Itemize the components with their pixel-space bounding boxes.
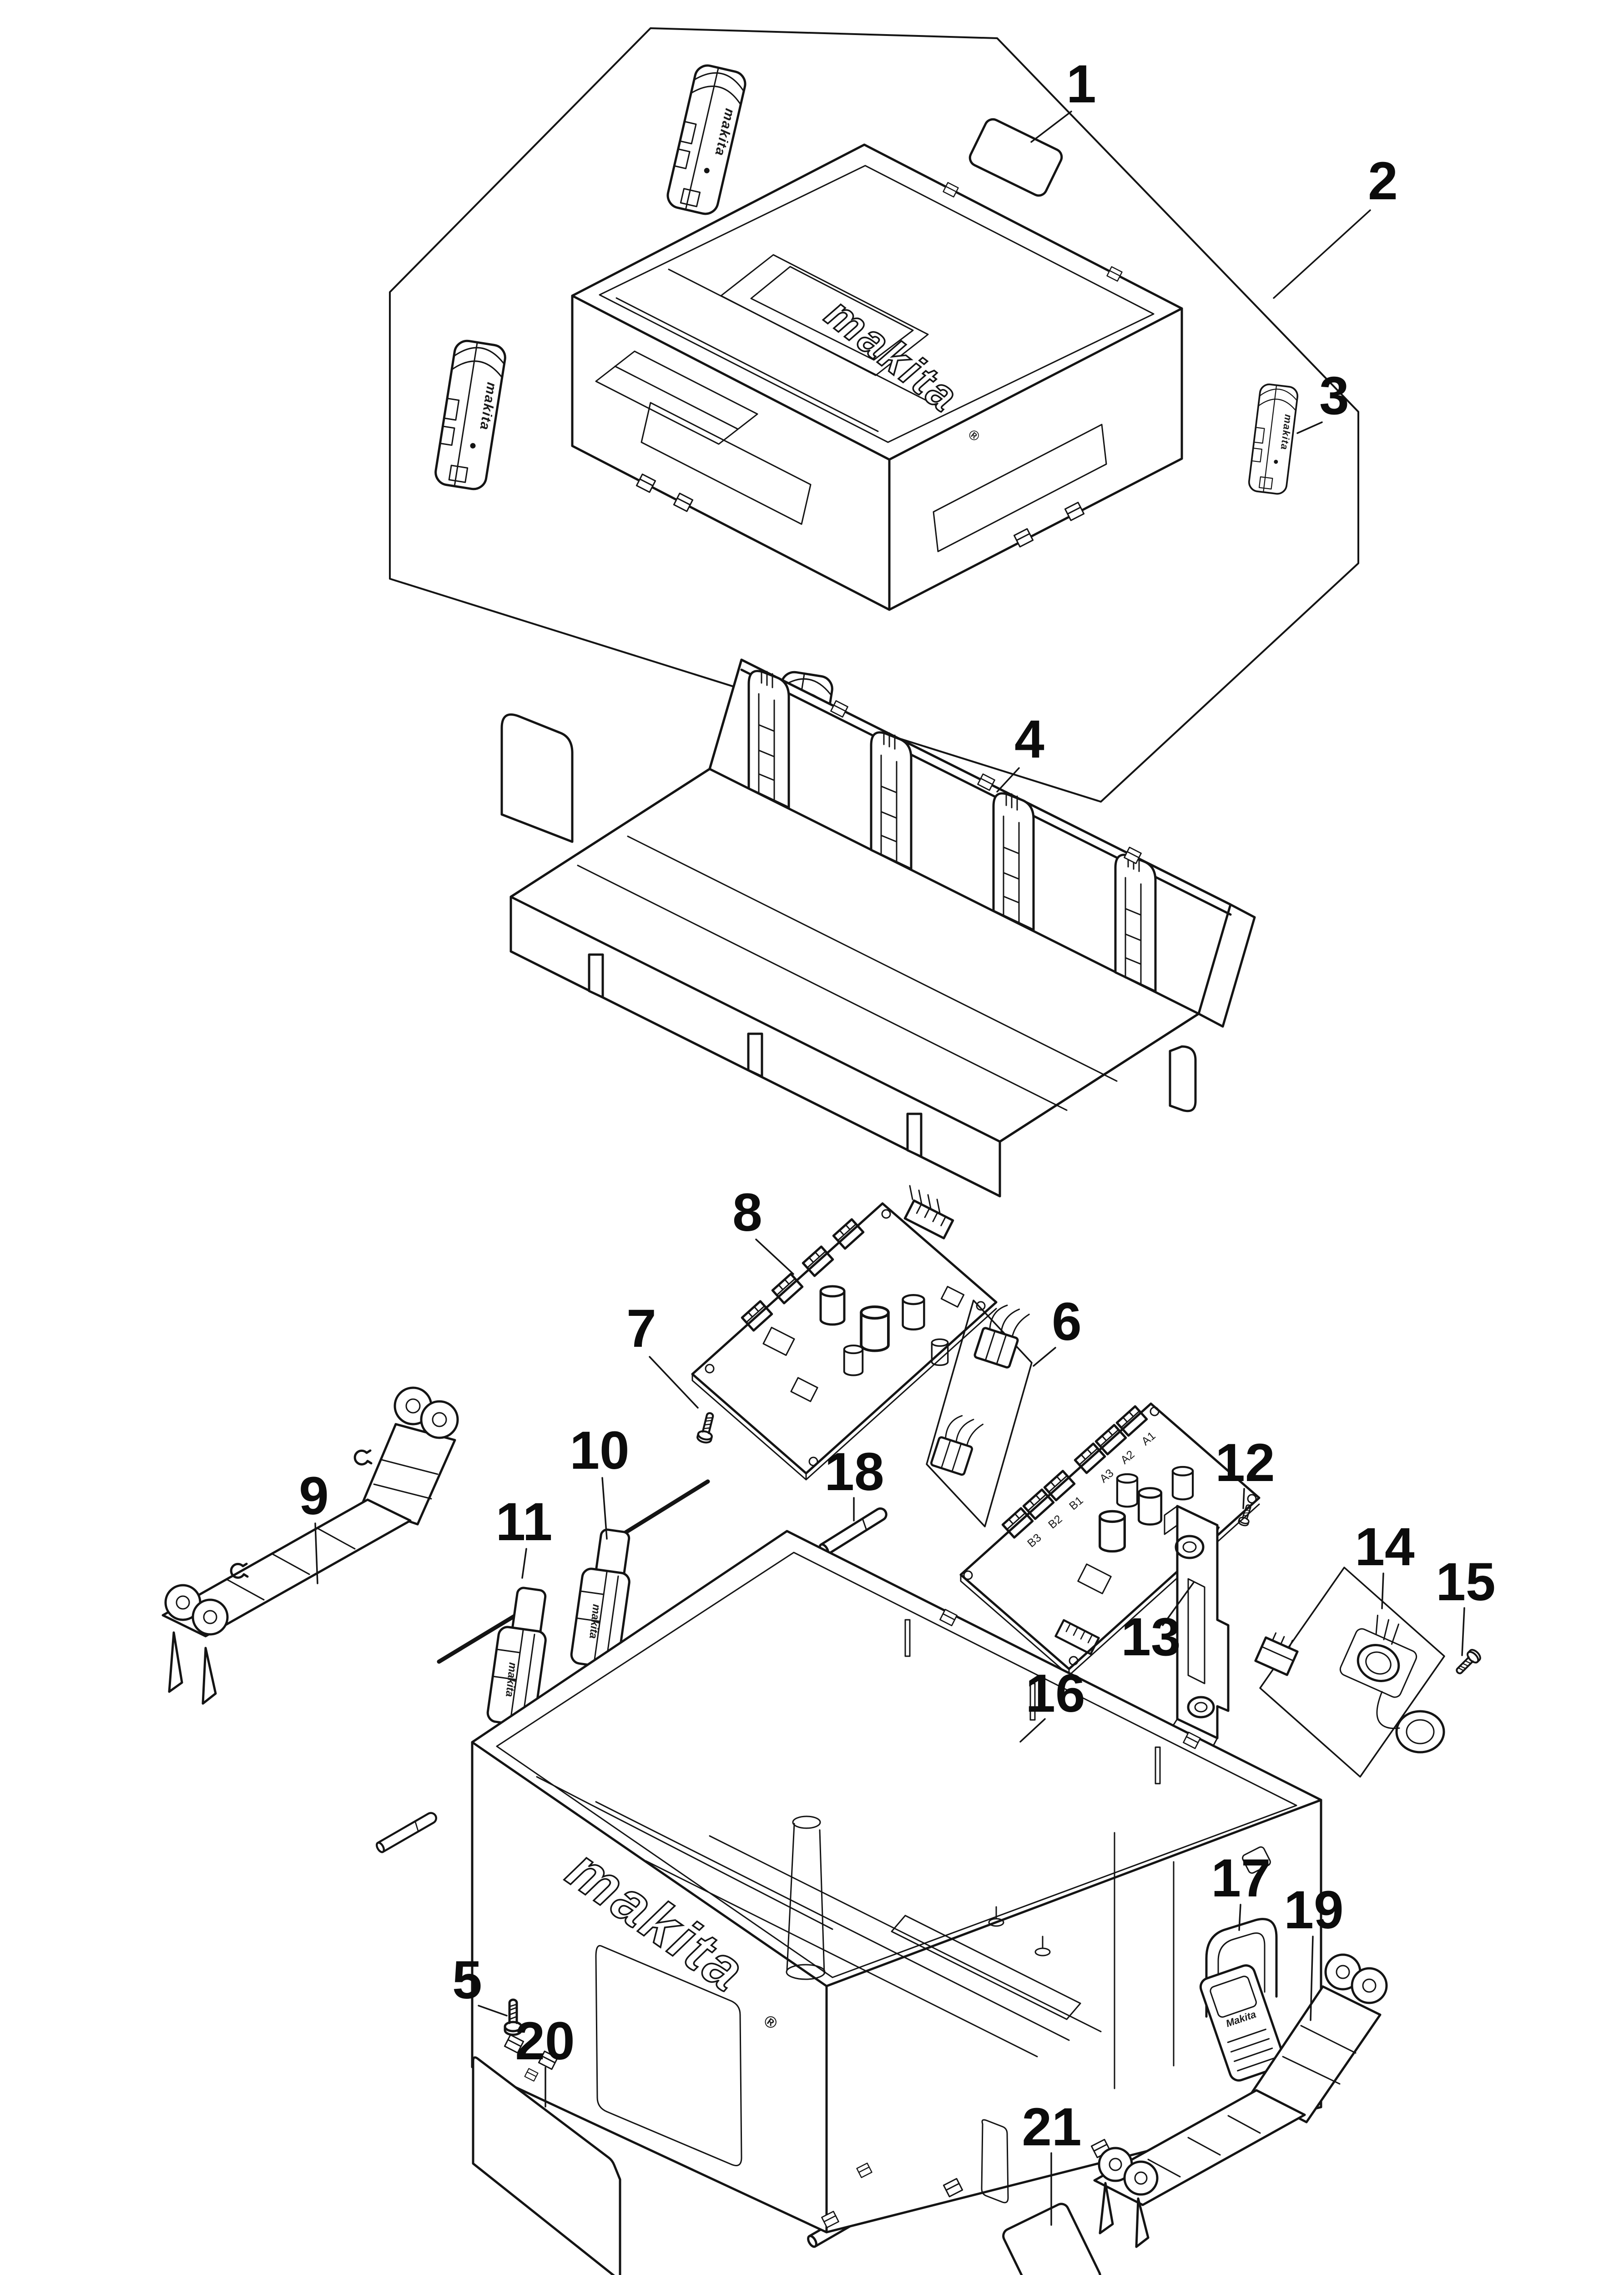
svg-text:21: 21: [1022, 2097, 1081, 2157]
lid-top: makita ®: [572, 145, 1182, 610]
svg-text:11: 11: [496, 1492, 553, 1552]
svg-text:2: 2: [1368, 151, 1398, 211]
svg-text:5: 5: [452, 1950, 482, 2010]
callout-7: 7: [626, 1299, 698, 1408]
svg-text:15: 15: [1436, 1552, 1495, 1612]
tray-part-4: [502, 660, 1255, 1196]
svg-text:6: 6: [1052, 1292, 1082, 1352]
screw-part-7: [696, 1411, 717, 1444]
svg-text:13: 13: [1121, 1607, 1180, 1667]
lid-assembly: makita ®: [434, 63, 1299, 822]
svg-text:18: 18: [824, 1442, 884, 1502]
svg-text:7: 7: [626, 1299, 656, 1359]
socket-assembly-part-14: [1256, 1567, 1444, 1777]
callout-3: 3: [1297, 366, 1349, 433]
svg-text:12: 12: [1215, 1433, 1275, 1493]
svg-text:19: 19: [1284, 1880, 1343, 1940]
latch-part-3: [1248, 383, 1298, 495]
callout-4: 4: [997, 709, 1044, 792]
callout-14: 14: [1355, 1517, 1414, 1608]
lid-latch-top: [665, 63, 747, 217]
callout-8: 8: [732, 1183, 793, 1274]
callout-2: 2: [1274, 151, 1398, 298]
callout-1: 1: [1031, 54, 1096, 142]
svg-text:4: 4: [1014, 709, 1044, 769]
svg-text:10: 10: [570, 1421, 629, 1481]
callout-10: 10: [570, 1421, 629, 1539]
svg-text:20: 20: [515, 2011, 575, 2071]
pin-left: [375, 1811, 438, 1853]
lid-latch-left: [434, 339, 507, 491]
callout-11: 11: [496, 1492, 553, 1578]
exploded-parts-diagram: makita makita: [0, 0, 1624, 2275]
handle-bracket-part-9: [163, 1388, 458, 1704]
svg-text:8: 8: [732, 1183, 762, 1243]
svg-text:14: 14: [1355, 1517, 1414, 1577]
callout-6: 6: [1034, 1292, 1082, 1366]
callout-18: 18: [824, 1442, 884, 1521]
svg-text:9: 9: [299, 1466, 329, 1526]
svg-text:3: 3: [1319, 366, 1349, 426]
svg-text:17: 17: [1211, 1848, 1271, 1908]
svg-text:1: 1: [1066, 54, 1096, 114]
callout-15: 15: [1436, 1552, 1495, 1655]
svg-text:16: 16: [1025, 1663, 1085, 1724]
screw-part-15: [1453, 1648, 1482, 1677]
